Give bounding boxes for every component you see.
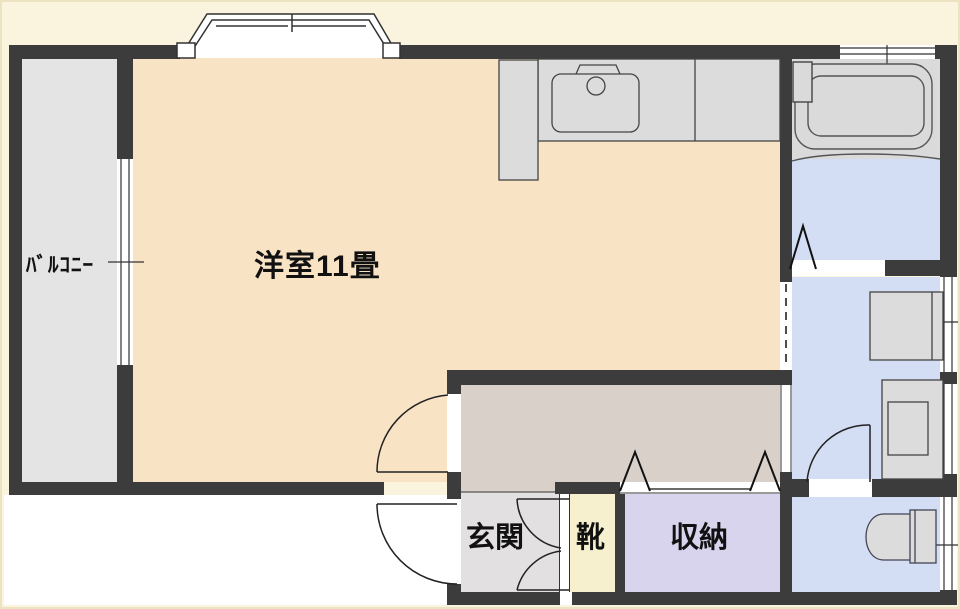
bathroom-top-window-icon [840, 45, 935, 64]
toilet-icon [866, 510, 936, 563]
shoe-cabinet-doors-icon [517, 499, 569, 590]
washbasin-counter-icon [870, 292, 943, 360]
bay-window-body [180, 15, 399, 58]
floorplan-canvas: ﾊﾞﾙｺﾆｰ 洋室11畳 玄関 靴 収納 [0, 0, 960, 609]
entrance-door-icon [377, 504, 457, 584]
bath-floor-edge [792, 154, 940, 161]
balcony-label: ﾊﾞﾙｺﾆｰ [26, 255, 94, 276]
washing-machine-icon [882, 380, 943, 479]
entrance-label: 玄関 [466, 524, 524, 553]
shoes-label: 靴 [576, 524, 605, 553]
storage-label: 収納 [670, 524, 728, 553]
washroom-toilet-door-icon [807, 425, 870, 482]
bathtub-icon [792, 62, 940, 161]
main-room-door-icon [377, 395, 448, 472]
main-room-label: 洋室11畳 [254, 252, 381, 282]
floorplan-linework [2, 2, 960, 609]
